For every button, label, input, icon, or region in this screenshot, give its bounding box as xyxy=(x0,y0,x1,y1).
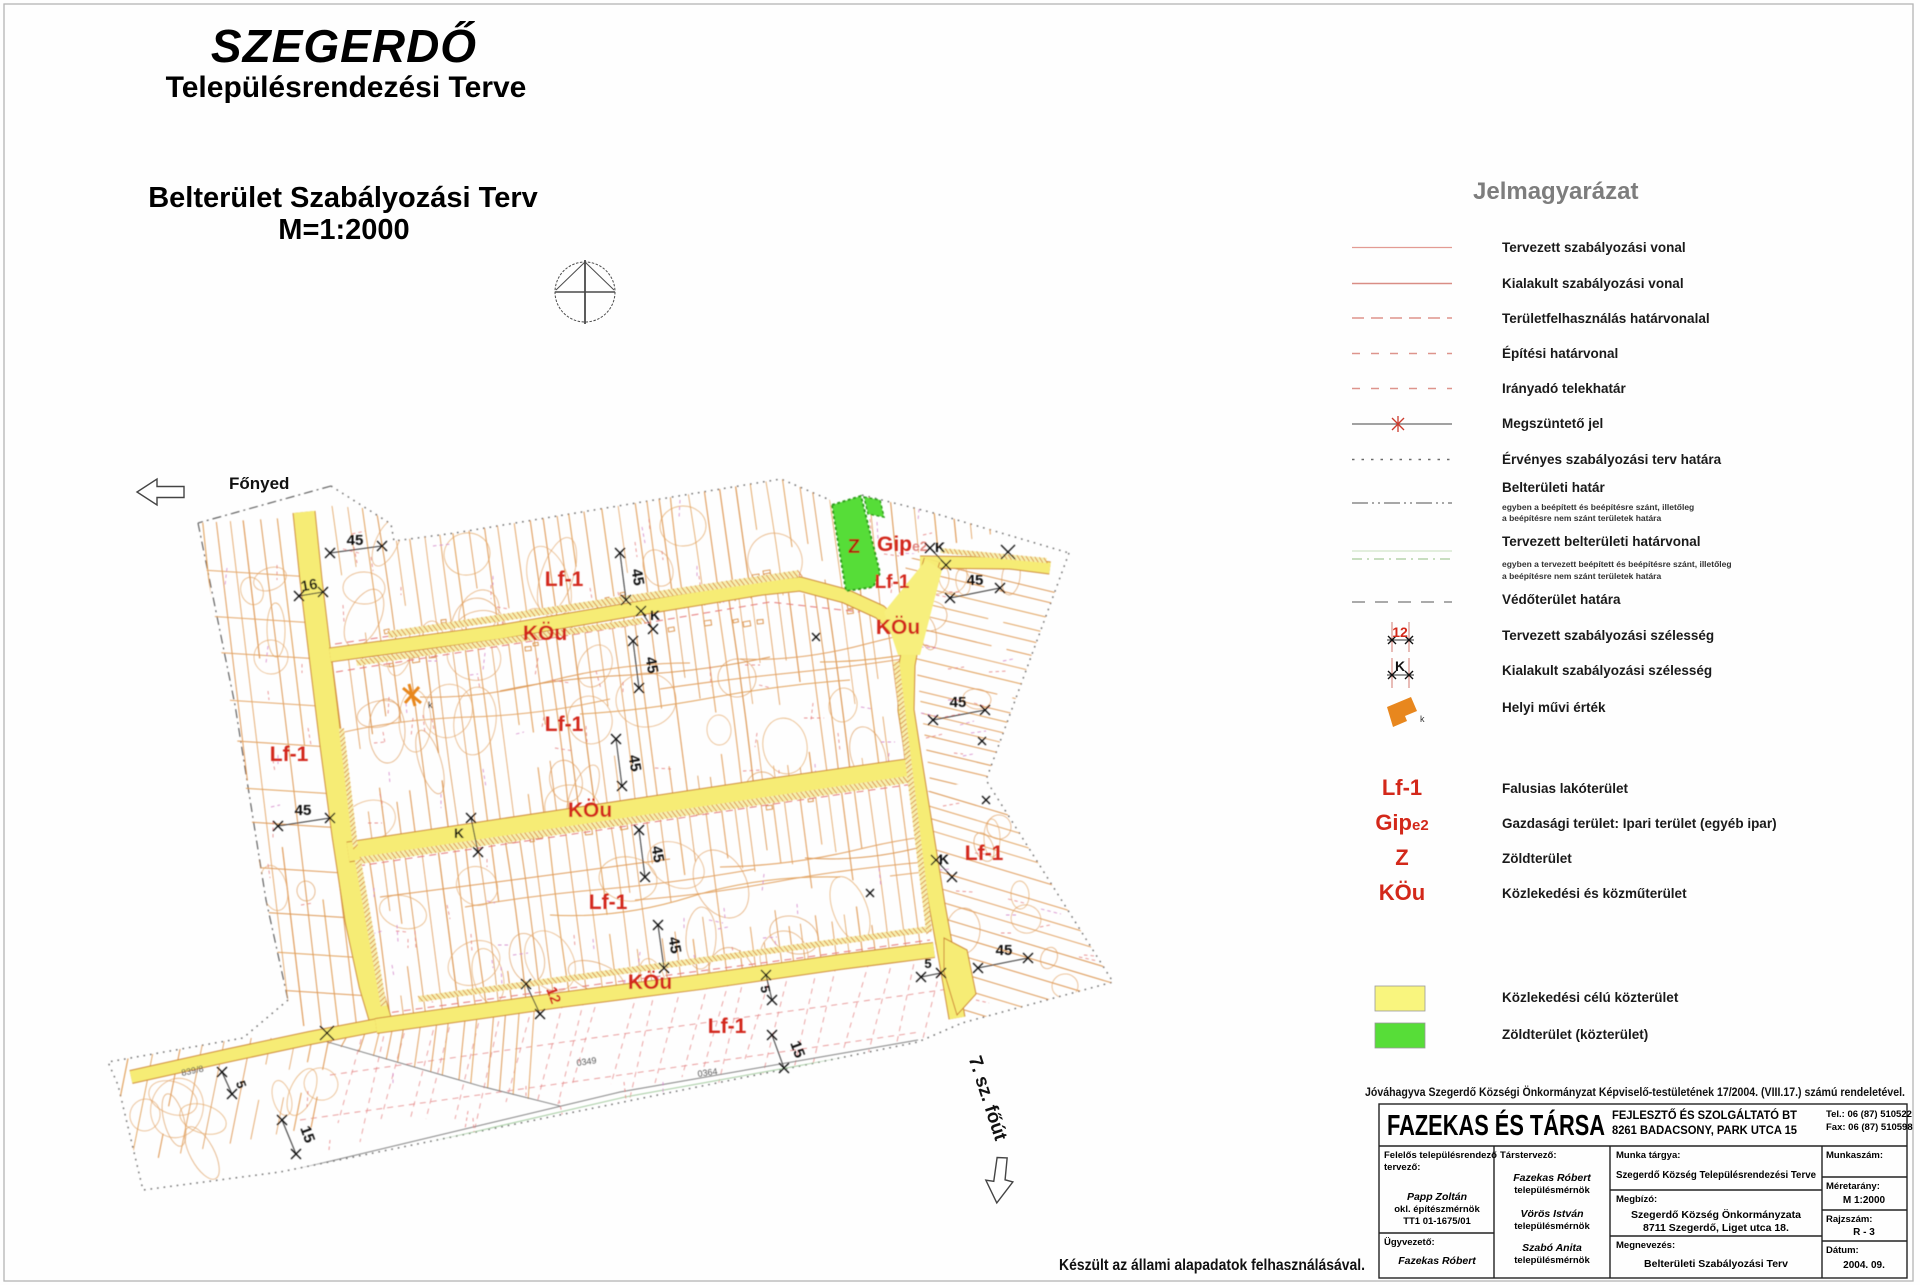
svg-text:k: k xyxy=(1420,714,1425,724)
svg-text:a beépítésre nem szánt terület: a beépítésre nem szánt területek határa xyxy=(1502,571,1661,581)
svg-text:KÖu: KÖu xyxy=(628,971,672,994)
svg-text:45: 45 xyxy=(967,572,984,589)
svg-text:45: 45 xyxy=(665,936,685,955)
svg-text:tervező:: tervező: xyxy=(1384,1162,1420,1173)
svg-text:Belterületi Szabályozási Terv: Belterületi Szabályozási Terv xyxy=(1644,1258,1788,1270)
svg-text:12: 12 xyxy=(1392,624,1408,640)
svg-text:Kialakult szabályozási vonal: Kialakult szabályozási vonal xyxy=(1502,276,1684,291)
svg-text:Tervezett belterületi határvon: Tervezett belterületi határvonal xyxy=(1502,534,1701,549)
svg-text:Megnevezés:: Megnevezés: xyxy=(1616,1240,1675,1251)
svg-text:Belterület Szabályozási Terv: Belterület Szabályozási Terv xyxy=(148,182,538,214)
svg-text:45: 45 xyxy=(648,845,668,864)
svg-text:Területfelhasználás határvonal: Területfelhasználás határvonalal xyxy=(1502,311,1710,326)
svg-text:FAZEKAS ÉS TÁRSA: FAZEKAS ÉS TÁRSA xyxy=(1387,1108,1605,1142)
svg-text:Munka tárgya:: Munka tárgya: xyxy=(1616,1150,1680,1161)
svg-text:Megbízó:: Megbízó: xyxy=(1616,1194,1657,1205)
svg-text:Gazdasági terület: Ipari terül: Gazdasági terület: Ipari terület (egyéb … xyxy=(1502,816,1777,831)
svg-text:Fazekas Róbert: Fazekas Róbert xyxy=(1398,1255,1476,1267)
svg-text:K: K xyxy=(939,851,949,867)
svg-text:KÖu: KÖu xyxy=(1379,880,1425,905)
svg-text:Tel.: 06 (87) 510522: Tel.: 06 (87) 510522 xyxy=(1826,1109,1912,1120)
svg-text:8711 Szegerdő, Liget utca 18.: 8711 Szegerdő, Liget utca 18. xyxy=(1643,1222,1789,1234)
svg-text:FEJLESZTŐ ÉS SZOLGÁLTATÓ BT: FEJLESZTŐ ÉS SZOLGÁLTATÓ BT xyxy=(1612,1109,1797,1122)
svg-text:Főnyed: Főnyed xyxy=(229,474,289,493)
svg-text:Szabó Anita: Szabó Anita xyxy=(1522,1242,1582,1254)
svg-text:Tervezett szabályozási széless: Tervezett szabályozási szélesség xyxy=(1502,628,1714,643)
svg-text:Tervezett szabályozási vonal: Tervezett szabályozási vonal xyxy=(1502,240,1686,255)
svg-text:8261 BADACSONY, PARK UTCA 15: 8261 BADACSONY, PARK UTCA 15 xyxy=(1612,1125,1798,1137)
svg-text:Irányadó telekhatár: Irányadó telekhatár xyxy=(1502,381,1627,396)
svg-text:Közlekedési célú közterület: Közlekedési célú közterület xyxy=(1502,990,1679,1005)
svg-text:45: 45 xyxy=(950,694,967,711)
svg-text:45: 45 xyxy=(996,942,1013,959)
svg-text:5: 5 xyxy=(924,956,931,971)
svg-text:Z: Z xyxy=(848,536,860,558)
svg-text:2004. 09.: 2004. 09. xyxy=(1843,1260,1885,1271)
svg-text:M=1:2000: M=1:2000 xyxy=(278,214,409,246)
svg-text:Jóváhagyva Szegerdő Községi Ön: Jóváhagyva Szegerdő Községi Önkormányzat… xyxy=(1365,1084,1905,1099)
svg-text:Készült az állami alapadatok f: Készült az állami alapadatok felhasználá… xyxy=(1059,1257,1365,1274)
svg-text:KÖu: KÖu xyxy=(876,616,920,639)
svg-text:Védőterület határa: Védőterület határa xyxy=(1502,592,1621,607)
svg-text:Lf-1: Lf-1 xyxy=(589,891,628,914)
svg-text:Falusias lakóterület: Falusias lakóterület xyxy=(1502,781,1629,796)
svg-text:Fazekas Róbert: Fazekas Róbert xyxy=(1513,1172,1591,1184)
svg-text:Ügyvezető:: Ügyvezető: xyxy=(1384,1237,1435,1248)
svg-text:Papp Zoltán: Papp Zoltán xyxy=(1407,1191,1467,1203)
svg-text:Munkaszám:: Munkaszám: xyxy=(1826,1150,1883,1161)
svg-text:SZEGERDŐ: SZEGERDŐ xyxy=(211,20,477,72)
svg-text:Fax: 06 (87) 510598: Fax: 06 (87) 510598 xyxy=(1826,1122,1913,1133)
svg-text:Kialakult szabályozási széless: Kialakult szabályozási szélesség xyxy=(1502,663,1712,678)
svg-text:Lf-1: Lf-1 xyxy=(965,842,1004,865)
svg-text:KÖu: KÖu xyxy=(568,799,612,822)
svg-text:településmérnök: településmérnök xyxy=(1514,1185,1590,1196)
svg-text:TT1 01-1675/01: TT1 01-1675/01 xyxy=(1403,1216,1471,1227)
svg-text:egyben a tervezett beépített é: egyben a tervezett beépített és beépítés… xyxy=(1502,559,1732,569)
svg-text:Lf-1: Lf-1 xyxy=(875,572,910,593)
svg-text:Jelmagyarázat: Jelmagyarázat xyxy=(1473,178,1638,205)
svg-text:településmérnök: településmérnök xyxy=(1514,1255,1590,1266)
svg-text:45: 45 xyxy=(628,568,648,587)
svg-text:Rajzszám:: Rajzszám: xyxy=(1826,1214,1872,1225)
svg-text:a beépítésre nem szánt terület: a beépítésre nem szánt területek határa xyxy=(1502,513,1661,523)
svg-text:Építési határvonal: Építési határvonal xyxy=(1502,346,1618,361)
svg-text:Lf-1: Lf-1 xyxy=(270,743,309,766)
svg-text:Dátum:: Dátum: xyxy=(1826,1245,1859,1256)
svg-text:Településrendezési Terve: Településrendezési Terve xyxy=(166,71,527,104)
svg-text:Lf-1: Lf-1 xyxy=(708,1015,747,1038)
svg-text:Zöldterület: Zöldterület xyxy=(1502,851,1572,866)
svg-text:egyben a beépített és beépítés: egyben a beépített és beépítésre szánt, … xyxy=(1502,502,1694,512)
svg-text:Lf-1: Lf-1 xyxy=(545,713,584,736)
svg-text:K: K xyxy=(454,825,464,841)
svg-text:okl. építészmérnök: okl. építészmérnök xyxy=(1394,1204,1480,1215)
svg-text:Zöldterület (közterület): Zöldterület (közterület) xyxy=(1502,1027,1648,1042)
svg-text:KÖu: KÖu xyxy=(523,622,567,645)
svg-text:településmérnök: településmérnök xyxy=(1514,1221,1590,1232)
svg-text:Szegerdő Község Településrende: Szegerdő Község Településrendezési Terve xyxy=(1616,1169,1816,1181)
svg-text:16: 16 xyxy=(300,576,319,596)
svg-text:Lf-1: Lf-1 xyxy=(1382,775,1422,800)
svg-text:Lf-1: Lf-1 xyxy=(545,568,584,591)
svg-text:45: 45 xyxy=(642,656,662,675)
svg-text:45: 45 xyxy=(347,532,364,549)
svg-text:R - 3: R - 3 xyxy=(1853,1227,1875,1238)
svg-text:Szegerdő Község Önkormányzata: Szegerdő Község Önkormányzata xyxy=(1631,1208,1801,1221)
svg-text:K: K xyxy=(1395,658,1405,674)
svg-text:M 1:2000: M 1:2000 xyxy=(1843,1195,1886,1206)
svg-text:Társtervező:: Társtervező: xyxy=(1500,1150,1557,1161)
svg-text:45: 45 xyxy=(295,802,312,819)
svg-text:Vörös István: Vörös István xyxy=(1520,1208,1583,1220)
svg-text:Z: Z xyxy=(1395,845,1408,870)
svg-text:Méretarány:: Méretarány: xyxy=(1826,1181,1880,1192)
svg-text:45: 45 xyxy=(625,754,645,773)
svg-text:K: K xyxy=(935,539,945,555)
svg-text:Közlekedési és közműterület: Közlekedési és közműterület xyxy=(1502,886,1687,901)
svg-text:Megszüntető jel: Megszüntető jel xyxy=(1502,416,1603,431)
svg-text:Érvényes szabályozási terv hat: Érvényes szabályozási terv határa xyxy=(1502,452,1722,467)
svg-text:Felelős településrendező: Felelős településrendező xyxy=(1384,1150,1497,1161)
svg-text:K: K xyxy=(650,607,660,623)
svg-text:Belterületi határ: Belterületi határ xyxy=(1502,480,1606,495)
svg-text:k: k xyxy=(428,700,433,710)
svg-text:Helyi művi érték: Helyi művi érték xyxy=(1502,700,1606,715)
